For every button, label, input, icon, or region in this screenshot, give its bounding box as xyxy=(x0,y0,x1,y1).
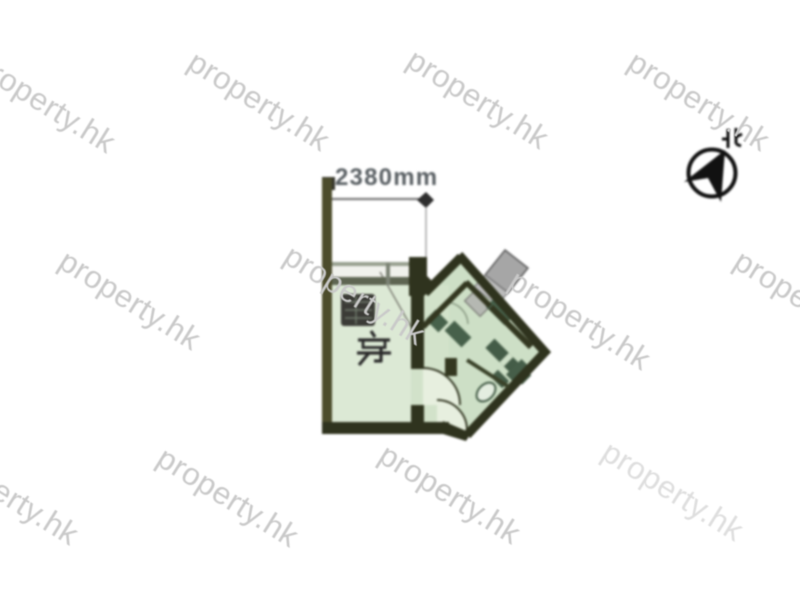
svg-text:2380mm: 2380mm xyxy=(335,164,438,191)
